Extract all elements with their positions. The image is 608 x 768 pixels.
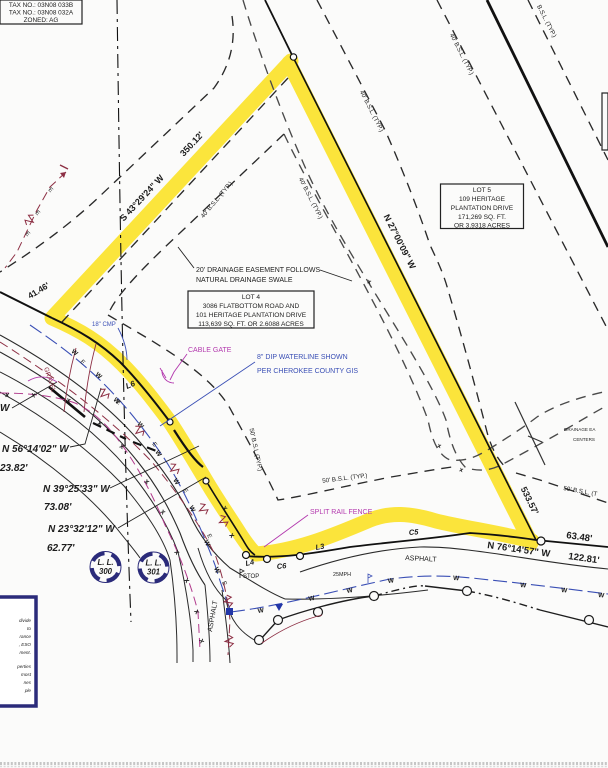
svg-text:101 HERITAGE PLANTATION DRIVE: 101 HERITAGE PLANTATION DRIVE bbox=[196, 312, 307, 319]
svg-text:nes: nes bbox=[24, 680, 32, 685]
svg-text:W: W bbox=[0, 403, 11, 414]
svg-text:NATURAL DRAINAGE SWALE: NATURAL DRAINAGE SWALE bbox=[196, 277, 293, 284]
svg-text:73.08': 73.08' bbox=[44, 502, 72, 513]
svg-text:300: 300 bbox=[99, 567, 113, 576]
svg-text:113,639 SQ. FT. OR 2.6088 ACRE: 113,639 SQ. FT. OR 2.6088 ACRES bbox=[198, 321, 304, 328]
svg-text:N 39°25'33" W: N 39°25'33" W bbox=[43, 484, 111, 495]
svg-text:DRAINAGE EA: DRAINAGE EA bbox=[564, 427, 596, 432]
svg-text:most: most bbox=[21, 672, 32, 677]
svg-text:TAX NO.: 03N08 032A: TAX NO.: 03N08 032A bbox=[9, 10, 74, 17]
svg-text:23.82': 23.82' bbox=[0, 463, 28, 474]
svg-text:PER CHEROKEE COUNTY GIS: PER CHEROKEE COUNTY GIS bbox=[257, 368, 358, 375]
svg-text:perties: perties bbox=[16, 664, 31, 669]
svg-text:N 56°14'02" W: N 56°14'02" W bbox=[2, 444, 70, 455]
svg-text:18" CMP: 18" CMP bbox=[92, 322, 116, 328]
svg-text:C5: C5 bbox=[409, 527, 420, 537]
svg-text:8" DIP WATERLINE SHOWN: 8" DIP WATERLINE SHOWN bbox=[257, 354, 348, 361]
svg-text:171,269 SQ. FT.: 171,269 SQ. FT. bbox=[458, 214, 506, 221]
svg-text:to: to bbox=[27, 626, 31, 631]
svg-text:OR 3.9318 ACRES: OR 3.9318 ACRES bbox=[454, 223, 511, 230]
svg-text:N 23°32'12" W: N 23°32'12" W bbox=[48, 524, 116, 535]
svg-text:, ESO: , ESO bbox=[19, 642, 32, 647]
svg-text:LOT 5: LOT 5 bbox=[473, 187, 492, 194]
svg-text:CENTERS: CENTERS bbox=[573, 437, 595, 442]
svg-text:ZONED: AG: ZONED: AG bbox=[24, 17, 59, 24]
svg-text:301: 301 bbox=[147, 568, 160, 577]
svg-text:ment.: ment. bbox=[20, 650, 32, 655]
svg-text:ple: ple bbox=[24, 688, 32, 693]
svg-text:SPLIT RAIL FENCE: SPLIT RAIL FENCE bbox=[310, 509, 373, 516]
svg-text:L. L.: L. L. bbox=[145, 559, 161, 568]
svg-text:STOP: STOP bbox=[243, 574, 259, 580]
svg-text:TAX NO.: 03N08 033B: TAX NO.: 03N08 033B bbox=[9, 2, 73, 9]
svg-text:divide: divide bbox=[19, 618, 31, 623]
svg-text:rance: rance bbox=[20, 634, 32, 639]
svg-text:L. L.: L. L. bbox=[97, 558, 113, 567]
svg-text:LOT 4: LOT 4 bbox=[242, 294, 261, 301]
svg-text:PLANTATION DRIVE: PLANTATION DRIVE bbox=[451, 205, 514, 212]
svg-text:109 HERITAGE: 109 HERITAGE bbox=[459, 196, 506, 203]
svg-text:25MPH: 25MPH bbox=[333, 572, 351, 578]
svg-text:3086 FLATBOTTOM ROAD AND: 3086 FLATBOTTOM ROAD AND bbox=[203, 303, 300, 310]
svg-text:62.77': 62.77' bbox=[47, 543, 75, 554]
svg-text:C6: C6 bbox=[276, 561, 287, 571]
svg-text:CABLE GATE: CABLE GATE bbox=[188, 347, 232, 354]
svg-text:20' DRAINAGE EASEMENT FOLLOWS: 20' DRAINAGE EASEMENT FOLLOWS bbox=[196, 267, 320, 274]
